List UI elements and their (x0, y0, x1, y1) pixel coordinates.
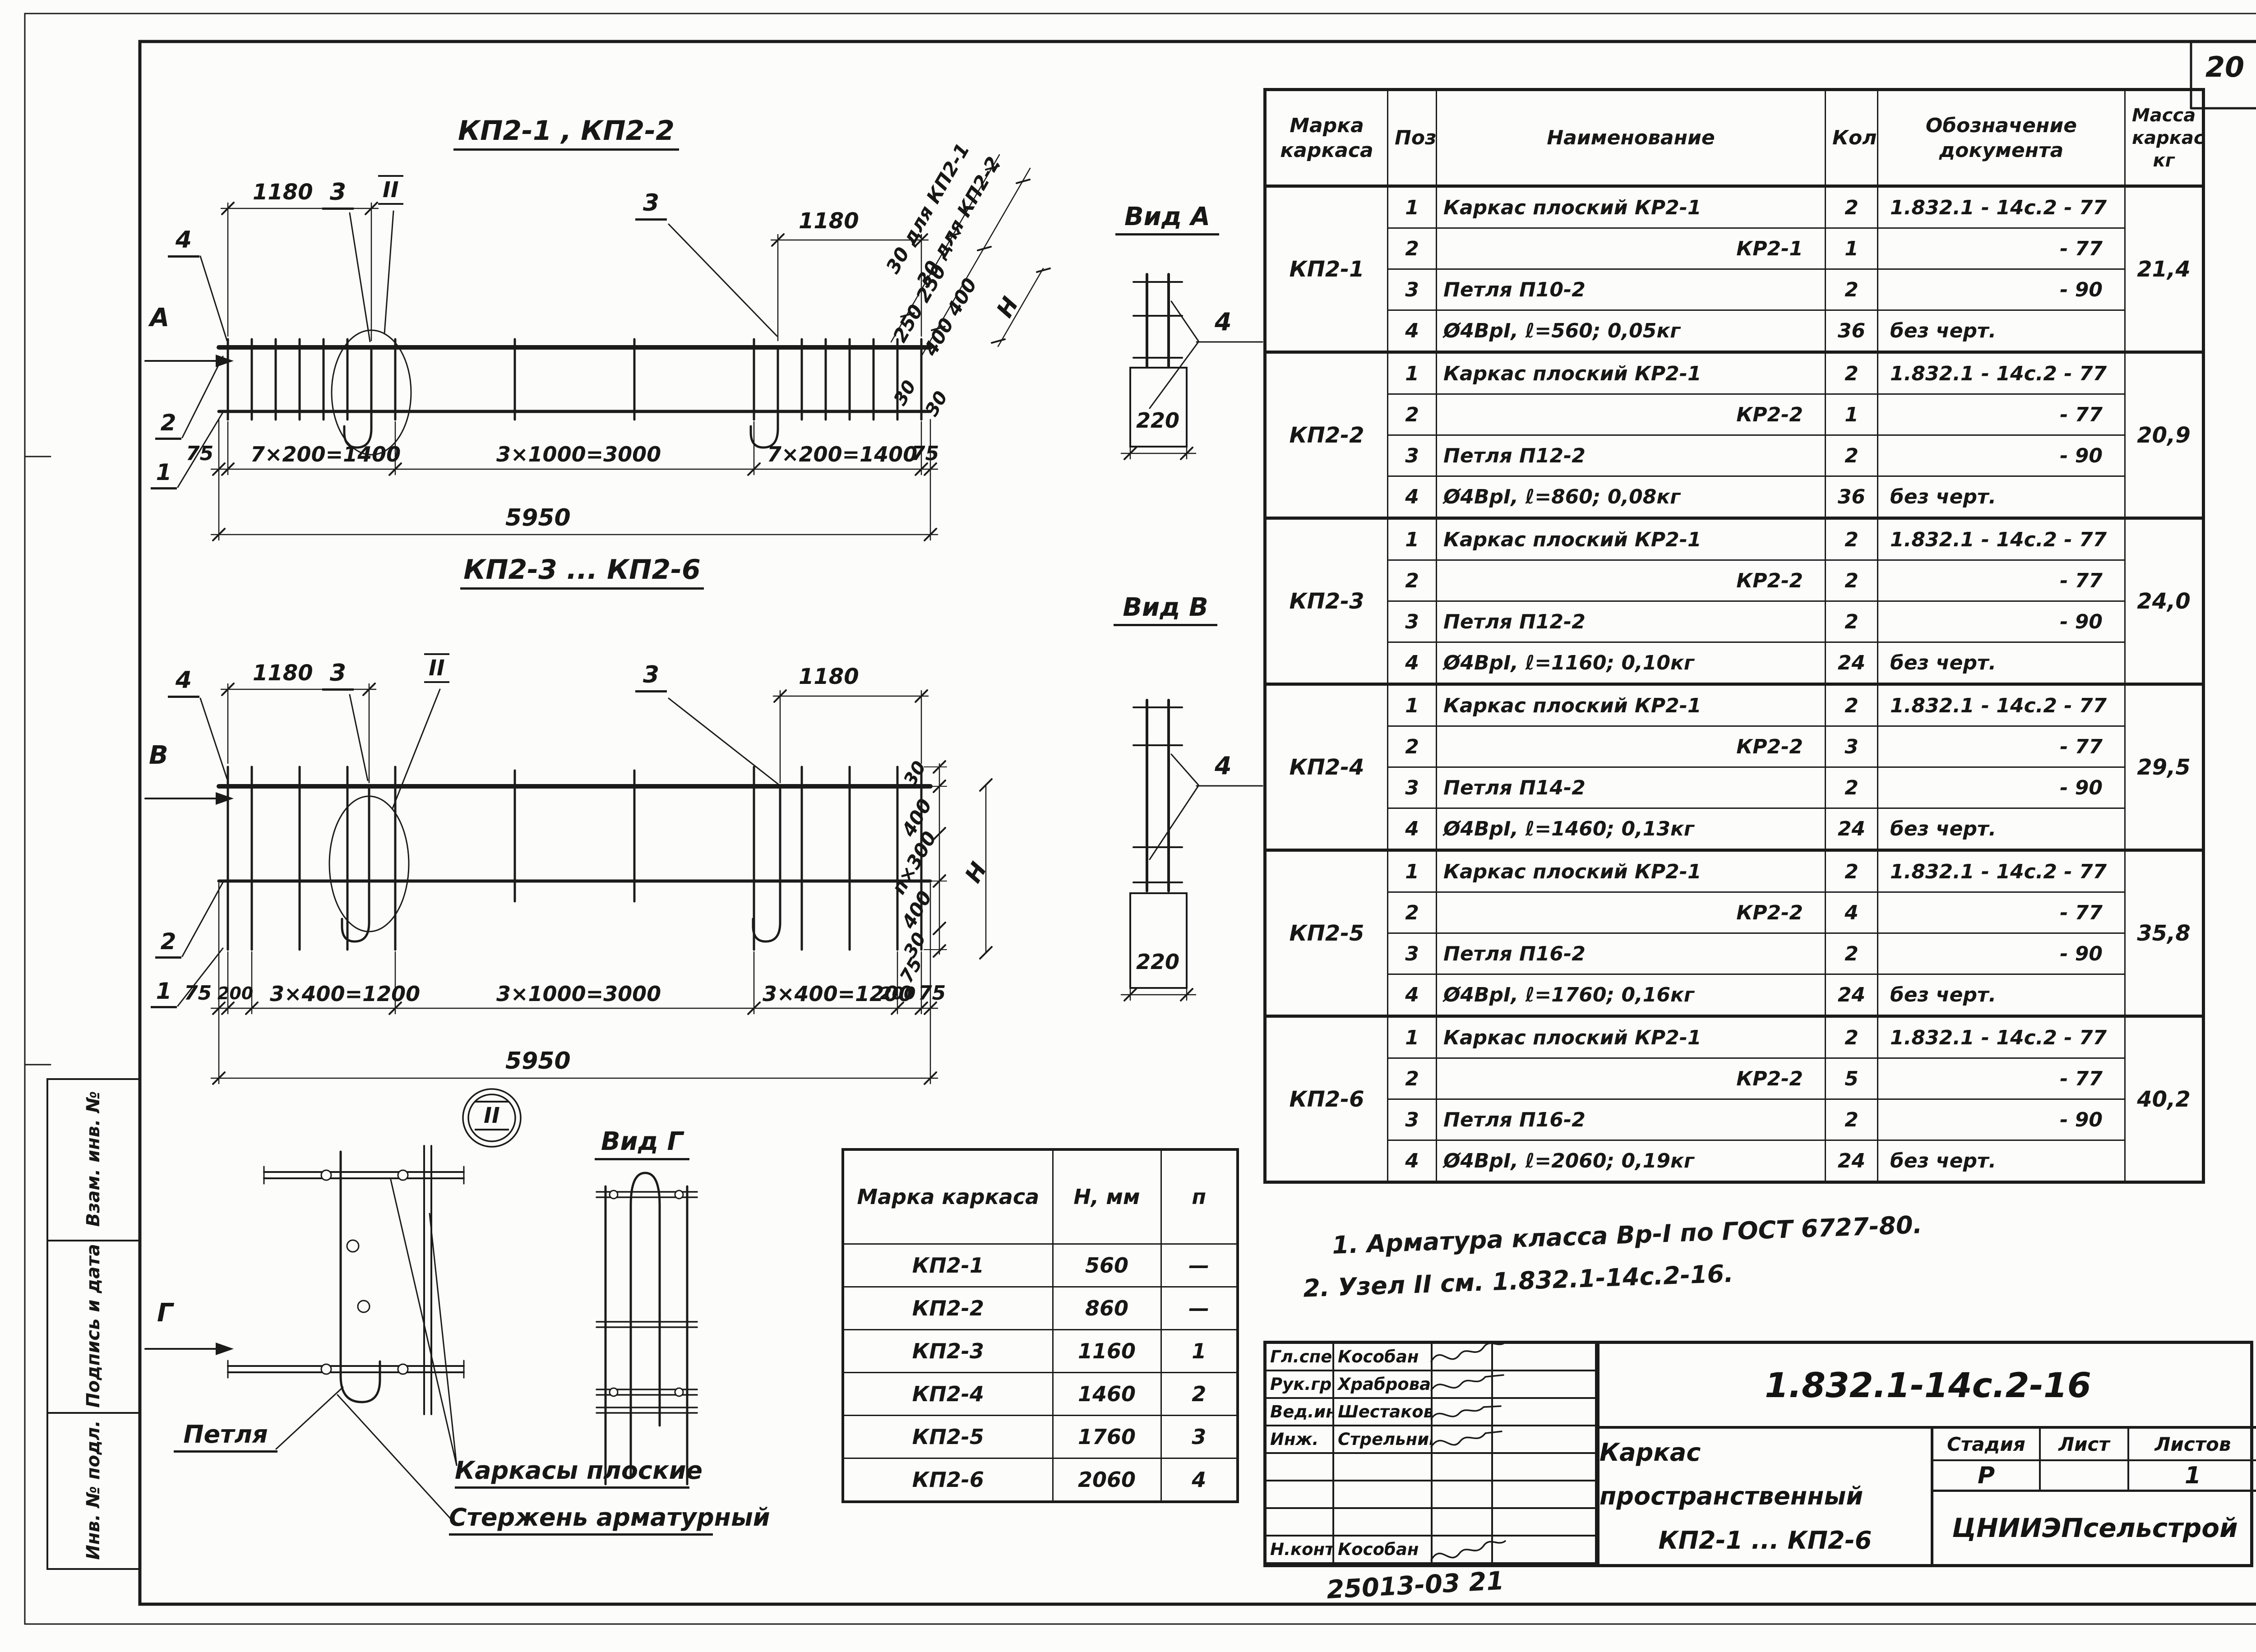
bom-cell: 1.832.1 - 14с.2 - 77 (1878, 850, 2125, 892)
staff-date (1493, 1344, 1597, 1371)
staff-role (1267, 1454, 1334, 1481)
section-arrow-g (216, 1343, 234, 1355)
bom-cell: 2 (1826, 352, 1878, 394)
bom-cell: 4 (1388, 476, 1437, 518)
staff-date (1493, 1481, 1597, 1509)
staff-signature (1433, 1537, 1493, 1564)
bom-cell: 2 (1388, 726, 1437, 767)
staff-date (1493, 1509, 1597, 1537)
bom-cell: КР2-1 (1437, 228, 1826, 269)
bom-cell: КР2-2 (1437, 560, 1826, 601)
bom-header-doc: Обозначение документа (1878, 90, 2125, 186)
pos-label-1: 1 (151, 978, 177, 1008)
flat-cages-label: Каркасы плоские (455, 1456, 689, 1489)
bom-cell: 2 (1826, 1099, 1878, 1140)
dim-label: 3×1000=3000 (496, 442, 661, 466)
bom-cell: 24 (1826, 1140, 1878, 1182)
staff-signature (1433, 1509, 1493, 1537)
bom-cell: Петля П12-2 (1437, 435, 1826, 476)
dim-label: 220 (1136, 950, 1179, 974)
size-cell: КП2-2 (843, 1287, 1053, 1330)
bom-cell: КП2-4 (1265, 684, 1388, 850)
bom-header-pos: Поз. (1388, 90, 1437, 186)
bom-cell: 1 (1826, 394, 1878, 435)
dim-label: 1180 (799, 208, 859, 234)
bom-cell: 20,9 (2125, 352, 2204, 518)
sheets-label: Листов (2127, 1429, 2256, 1461)
size-cell: — (1161, 1244, 1238, 1287)
dim-label: 1180 (253, 180, 313, 205)
bom-header-mark: Марка каркаса (1265, 90, 1388, 186)
pos-label-3: 3 (635, 189, 667, 221)
loop-hook (341, 1152, 380, 1402)
document-number: 1.832.1-14с.2-16 (1597, 1344, 2256, 1429)
bom-cell: Петля П10-2 (1437, 269, 1826, 310)
bom-cell: 2 (1826, 767, 1878, 808)
size-cell: 2 (1161, 1373, 1238, 1416)
node-ref-label: II (378, 175, 403, 205)
bom-cell: - 77 (1878, 726, 2125, 767)
bom-cell: 3 (1388, 269, 1437, 310)
bom-cell: 3 (1388, 933, 1437, 974)
bom-cell: - 90 (1878, 601, 2125, 642)
bom-cell: 2 (1388, 892, 1437, 933)
dim-label: 75 (918, 982, 946, 1005)
staff-name: Стрельникова (1334, 1426, 1433, 1454)
sheet-label: Лист (2039, 1429, 2127, 1461)
bom-cell: - 77 (1878, 228, 2125, 269)
loop-label: Петля (174, 1420, 277, 1453)
staff-role: Инж. (1267, 1426, 1334, 1454)
bom-cell: Каркас плоский КР2-1 (1437, 684, 1826, 726)
bom-cell: 2 (1826, 269, 1878, 310)
margin-label-vzam: Взам. инв. № (83, 1078, 104, 1240)
size-table: Марка каркаса Н, мм п КП2-1560—КП2-2860—… (841, 1148, 1239, 1503)
staff-name: Шестакова (1334, 1399, 1433, 1426)
bom-cell: 24 (1826, 808, 1878, 850)
bom-cell: 4 (1388, 642, 1437, 684)
bom-cell: 4 (1388, 1140, 1437, 1182)
bom-cell: 1 (1388, 186, 1437, 228)
bom-cell: 3 (1388, 1099, 1437, 1140)
size-cell: КП2-3 (843, 1330, 1053, 1373)
view-arrow-letter-g: Г (157, 1298, 173, 1328)
bom-cell: Каркас плоский КР2-1 (1437, 1016, 1826, 1058)
bom-cell: 3 (1388, 435, 1437, 476)
bom-cell: Ø4ВрI, ℓ=1760; 0,16кг (1437, 974, 1826, 1016)
dim-total-label: 5950 (505, 504, 571, 531)
bom-cell: Петля П14-2 (1437, 767, 1826, 808)
bom-cell: 5 (1826, 1058, 1878, 1099)
bom-cell: 2 (1388, 394, 1437, 435)
size-cell: 860 (1053, 1287, 1161, 1330)
bom-cell: 29,5 (2125, 684, 2204, 850)
dim-label: 7×200=1400 (250, 442, 401, 466)
bom-cell: КР2-2 (1437, 1058, 1826, 1099)
dim-label: 7×200=1400 (767, 442, 917, 466)
size-cell: 1760 (1053, 1416, 1161, 1458)
dim-total-label: 5950 (505, 1047, 571, 1075)
cage-elevation-kp23-kp26 (219, 767, 930, 950)
bom-cell: 2 (1826, 933, 1878, 974)
bom-cell: 1.832.1 - 14с.2 - 77 (1878, 684, 2125, 726)
bom-cell: 3 (1388, 767, 1437, 808)
pos-label-4: 4 (1215, 752, 1232, 780)
view-arrow-letter-a: А (150, 303, 169, 332)
bom-cell: Каркас плоский КР2-1 (1437, 352, 1826, 394)
bom-cell: 2 (1826, 684, 1878, 726)
staff-date (1493, 1399, 1597, 1426)
bom-cell: Ø4ВрI, ℓ=2060; 0,19кг (1437, 1140, 1826, 1182)
bom-cell: 4 (1388, 310, 1437, 352)
bom-cell: 24,0 (2125, 518, 2204, 684)
bom-cell: - 90 (1878, 933, 2125, 974)
bom-cell: 1 (1388, 1016, 1437, 1058)
size-cell: 560 (1053, 1244, 1161, 1287)
bom-cell: 2 (1826, 1016, 1878, 1058)
bom-cell: без черт. (1878, 476, 2125, 518)
size-cell: КП2-1 (843, 1244, 1053, 1287)
cage2-leaders (145, 689, 779, 1006)
dim-label: 220 (1136, 408, 1179, 433)
size-cell: 1 (1161, 1330, 1238, 1373)
bom-cell: 2 (1388, 560, 1437, 601)
bom-cell: Петля П16-2 (1437, 1099, 1826, 1140)
size-header-n: п (1161, 1149, 1238, 1244)
sheet-corner-number: 20 (2191, 51, 2256, 83)
bom-cell: - 90 (1878, 1099, 2125, 1140)
bom-cell: КП2-1 (1265, 186, 1388, 352)
staff-role: Н.контр. (1267, 1537, 1334, 1564)
staff-name: Кособан (1334, 1344, 1433, 1371)
view-arrow-letter-b: В (149, 741, 168, 770)
dim-label: 75 (911, 442, 939, 465)
dim-label: 75 (186, 442, 213, 465)
bom-table: Марка каркаса Поз. Наименование Кол. Обо… (1263, 88, 2205, 1184)
pos-label-2: 2 (155, 928, 181, 959)
bom-cell: 4 (1388, 808, 1437, 850)
bom-cell: КР2-2 (1437, 394, 1826, 435)
dim-label: 200 (880, 983, 915, 1003)
staff-name (1334, 1454, 1433, 1481)
stage-label: Стадия (1931, 1429, 2039, 1461)
bom-cell: Петля П12-2 (1437, 601, 1826, 642)
bom-cell: Ø4ВрI, ℓ=860; 0,08кг (1437, 476, 1826, 518)
cage2-dimensions (211, 683, 992, 1084)
bom-cell: 2 (1826, 601, 1878, 642)
bom-cell: 1 (1388, 850, 1437, 892)
bom-cell: 2 (1826, 186, 1878, 228)
bom-header-mass: Масса каркаса, кг (2125, 90, 2204, 186)
size-cell: 4 (1161, 1458, 1238, 1502)
staff-role (1267, 1509, 1334, 1537)
bom-cell: 4 (1388, 974, 1437, 1016)
bom-cell: 1.832.1 - 14с.2 - 77 (1878, 352, 2125, 394)
bom-cell: 1 (1388, 518, 1437, 560)
size-header-h: Н, мм (1053, 1149, 1161, 1244)
drawing-sheet: КП2-1 , КП2-2 1180 3 II 3 1180 4 А 2 1 7… (0, 0, 2256, 1652)
bom-cell: Ø4ВрI, ℓ=1160; 0,10кг (1437, 642, 1826, 684)
size-cell: 1460 (1053, 1373, 1161, 1416)
staff-role (1267, 1481, 1334, 1509)
bom-cell: 3 (1826, 726, 1878, 767)
dim-label: 200 (217, 983, 253, 1003)
staff-name (1334, 1481, 1433, 1509)
bom-cell: 1.832.1 - 14с.2 - 77 (1878, 518, 2125, 560)
bom-cell: 36 (1826, 310, 1878, 352)
bom-cell: без черт. (1878, 310, 2125, 352)
size-cell: — (1161, 1287, 1238, 1330)
title-block: Гл.спец.КособанРук.гр.ХраброваВед.инж.Ше… (1263, 1341, 2253, 1567)
staff-date (1493, 1454, 1597, 1481)
bom-cell: 1 (1388, 352, 1437, 394)
organization: ЦНИИЭПсельстрой (1931, 1492, 2256, 1564)
cage-elevation-kp21-kp22 (219, 330, 930, 455)
size-cell: КП2-4 (843, 1373, 1053, 1416)
title-block-staff: Гл.спец.КособанРук.гр.ХраброваВед.инж.Ше… (1267, 1344, 1597, 1564)
staff-date (1493, 1371, 1597, 1399)
bom-cell: без черт. (1878, 974, 2125, 1016)
bom-cell: Каркас плоский КР2-1 (1437, 518, 1826, 560)
bom-cell: 40,2 (2125, 1016, 2204, 1182)
pos-label-4: 4 (1215, 308, 1232, 336)
drawing-title-line2: КП2-1 ... КП2-6 (1659, 1518, 1872, 1562)
size-cell: КП2-6 (843, 1458, 1053, 1502)
node-ref-label: II (424, 653, 449, 683)
staff-name (1334, 1509, 1433, 1537)
staff-date (1493, 1426, 1597, 1454)
bom-cell: - 90 (1878, 269, 2125, 310)
bom-cell: - 90 (1878, 767, 2125, 808)
section-arrow-a (216, 355, 234, 367)
pos-label-3: 3 (322, 179, 354, 210)
bom-cell: 2 (1388, 1058, 1437, 1099)
bom-cell: Каркас плоский КР2-1 (1437, 850, 1826, 892)
sheet-value (2039, 1461, 2127, 1492)
bom-cell: 1 (1388, 684, 1437, 726)
bom-cell: 2 (1826, 518, 1878, 560)
bom-cell: Каркас плоский КР2-1 (1437, 186, 1826, 228)
bom-cell: - 77 (1878, 1058, 2125, 1099)
margin-label-podpis: Подпись и дата (83, 1240, 104, 1412)
drawing2-title: КП2-3 ... КП2-6 (460, 554, 704, 590)
drawing-title-line1: Каркас пространственный (1600, 1431, 1931, 1518)
size-cell: 3 (1161, 1416, 1238, 1458)
bom-cell: - 77 (1878, 394, 2125, 435)
sheets-value: 1 (2127, 1461, 2256, 1492)
bom-header-qty: Кол. (1826, 90, 1878, 186)
size-cell: КП2-5 (843, 1416, 1053, 1458)
view-g-title: Вид Г (595, 1127, 689, 1160)
drawing1-title: КП2-1 , КП2-2 (453, 115, 679, 151)
pos-label-2: 2 (155, 410, 181, 440)
node-ii-detail (145, 1089, 521, 1519)
dim-label: 3×1000=3000 (496, 982, 661, 1006)
dim-label: 1180 (799, 664, 859, 689)
view-g-detail (596, 1173, 697, 1484)
view-b-title: Вид В (1114, 593, 1217, 626)
bom-cell: КР2-2 (1437, 892, 1826, 933)
bom-cell: без черт. (1878, 808, 2125, 850)
bom-cell: 2 (1826, 435, 1878, 476)
staff-signature (1433, 1454, 1493, 1481)
bom-cell: 24 (1826, 974, 1878, 1016)
rebar-rod-label: Стержень арматурный (449, 1503, 713, 1536)
pos-label-3: 3 (322, 660, 354, 691)
bom-cell: КП2-3 (1265, 518, 1388, 684)
bom-cell: 2 (1826, 560, 1878, 601)
bom-cell: 1.832.1 - 14с.2 - 77 (1878, 1016, 2125, 1058)
staff-signature (1433, 1371, 1493, 1399)
pos-label-4: 4 (168, 226, 199, 258)
bom-cell: 35,8 (2125, 850, 2204, 1016)
dim-label: 1180 (253, 660, 313, 686)
bom-cell: 4 (1826, 892, 1878, 933)
size-header-mark: Марка каркаса (843, 1149, 1053, 1244)
bom-cell: КП2-5 (1265, 850, 1388, 1016)
bom-header-name: Наименование (1437, 90, 1826, 186)
staff-signature (1433, 1481, 1493, 1509)
staff-role: Рук.гр. (1267, 1371, 1334, 1399)
pos-label-1: 1 (151, 459, 177, 489)
staff-date (1493, 1537, 1597, 1564)
bom-cell: 1 (1826, 228, 1878, 269)
staff-signature (1433, 1399, 1493, 1426)
staff-role: Гл.спец. (1267, 1344, 1334, 1371)
bom-cell: без черт. (1878, 1140, 2125, 1182)
dim-label: 3×400=1200 (270, 982, 420, 1006)
pos-label-3: 3 (635, 661, 667, 692)
pos-label-4: 4 (168, 667, 199, 698)
bom-cell: 1.832.1 - 14с.2 - 77 (1878, 186, 2125, 228)
stage-value: Р (1931, 1461, 2039, 1492)
staff-name: Храброва (1334, 1371, 1433, 1399)
lifting-hook (753, 786, 780, 941)
staff-signature (1433, 1344, 1493, 1371)
section-arrow-b (216, 792, 234, 805)
bom-cell: 3 (1388, 601, 1437, 642)
bom-cell: 36 (1826, 476, 1878, 518)
view-a-title: Вид А (1115, 202, 1219, 235)
bom-cell: 2 (1388, 228, 1437, 269)
bom-cell: Ø4ВрI, ℓ=560; 0,05кг (1437, 310, 1826, 352)
bom-cell: Ø4ВрI, ℓ=1460; 0,13кг (1437, 808, 1826, 850)
size-cell: 1160 (1053, 1330, 1161, 1373)
bom-cell: без черт. (1878, 642, 2125, 684)
margin-label-inv: Инв. № подл. (83, 1412, 104, 1568)
staff-signature (1433, 1426, 1493, 1454)
staff-role: Вед.инж. (1267, 1399, 1334, 1426)
bom-cell: КР2-2 (1437, 726, 1826, 767)
bom-cell: КП2-2 (1265, 352, 1388, 518)
dim-label: 75 (184, 982, 212, 1005)
bom-cell: Петля П16-2 (1437, 933, 1826, 974)
size-cell: 2060 (1053, 1458, 1161, 1502)
bom-cell: 21,4 (2125, 186, 2204, 352)
bom-cell: - 90 (1878, 435, 2125, 476)
bom-cell: 24 (1826, 642, 1878, 684)
bom-cell: - 77 (1878, 892, 2125, 933)
staff-name: Кособан (1334, 1537, 1433, 1564)
node-bubble-label: II (475, 1101, 509, 1131)
bom-cell: КП2-6 (1265, 1016, 1388, 1182)
bom-cell: 2 (1826, 850, 1878, 892)
bom-cell: - 77 (1878, 560, 2125, 601)
